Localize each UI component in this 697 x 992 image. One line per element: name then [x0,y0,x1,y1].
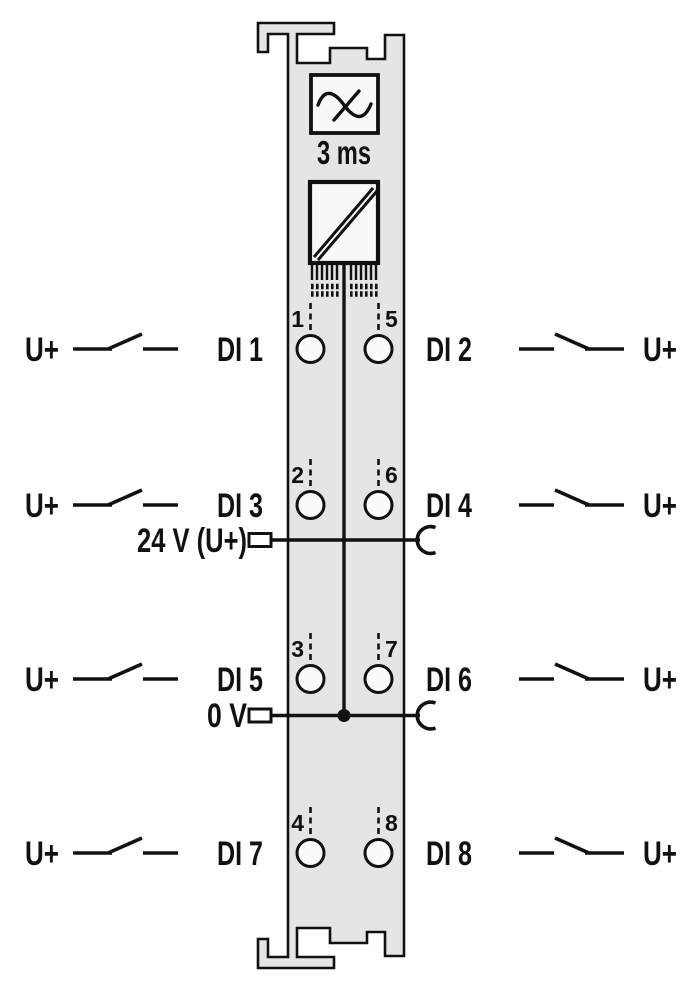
input-label-right: DI 6 [426,661,472,699]
supply-label-left: U+ [25,661,59,699]
supply-label-left: U+ [25,331,59,369]
power-terminal-box-24v [249,534,271,547]
input-label-left: DI 3 [217,487,263,525]
terminal-number-left: 4 [291,810,304,836]
terminal-number-right: 7 [385,636,398,662]
power-jumper-contact-icon [417,527,435,554]
supply-label-right: U+ [643,487,677,525]
wiring-diagram-svg: 3 ms U+ DI 1 1 5 DI 2 U+ U+ DI 3 2 [0,0,697,992]
supply-label-left: U+ [25,835,59,873]
supply-label-right: U+ [643,331,677,369]
terminal-number-right: 6 [385,462,398,488]
terminal-number-right: 5 [385,306,398,332]
terminal-number-right: 8 [385,810,398,836]
supply-label-right: U+ [643,661,677,699]
input-label-left: DI 5 [217,661,263,699]
terminal-number-left: 1 [291,306,304,332]
input-label-right: DI 2 [426,331,472,369]
switch-icon-left [73,334,178,349]
switch-icon-left [73,838,178,853]
terminal-contact-left [297,840,324,867]
terminal-contact-right [365,336,392,363]
terminal-number-left: 3 [291,636,304,662]
terminal-contact-right [365,492,392,519]
power-rail-0v-label: 0 V [207,697,247,735]
input-filter-block: 3 ms [311,75,378,171]
junction-dot [338,709,351,722]
terminal-contact-left [297,336,324,363]
switch-icon-right [519,838,624,853]
terminal-contact-left [297,666,324,693]
supply-label-left: U+ [25,487,59,525]
isolation-block [310,182,378,263]
terminal-contact-right [365,840,392,867]
power-rail-24v-label: 24 V (U+) [137,522,247,560]
switch-icon-right [519,334,624,349]
power-jumper-contact-icon [417,702,435,729]
switch-icon-right [519,490,624,505]
filter-delay-label: 3 ms [317,134,371,171]
input-label-left: DI 7 [217,835,263,873]
terminal-contact-right [365,666,392,693]
wiring-diagram-page: 3 ms U+ DI 1 1 5 DI 2 U+ U+ DI 3 2 [0,0,697,992]
input-label-right: DI 8 [426,835,472,873]
supply-label-right: U+ [643,835,677,873]
power-terminal-box-0v [249,709,271,722]
switch-icon-left [73,490,178,505]
terminal-number-left: 2 [291,462,304,488]
input-label-left: DI 1 [217,331,263,369]
terminal-contact-left [297,492,324,519]
switch-icon-right [519,664,624,679]
input-label-right: DI 4 [426,487,472,525]
switch-icon-left [73,664,178,679]
